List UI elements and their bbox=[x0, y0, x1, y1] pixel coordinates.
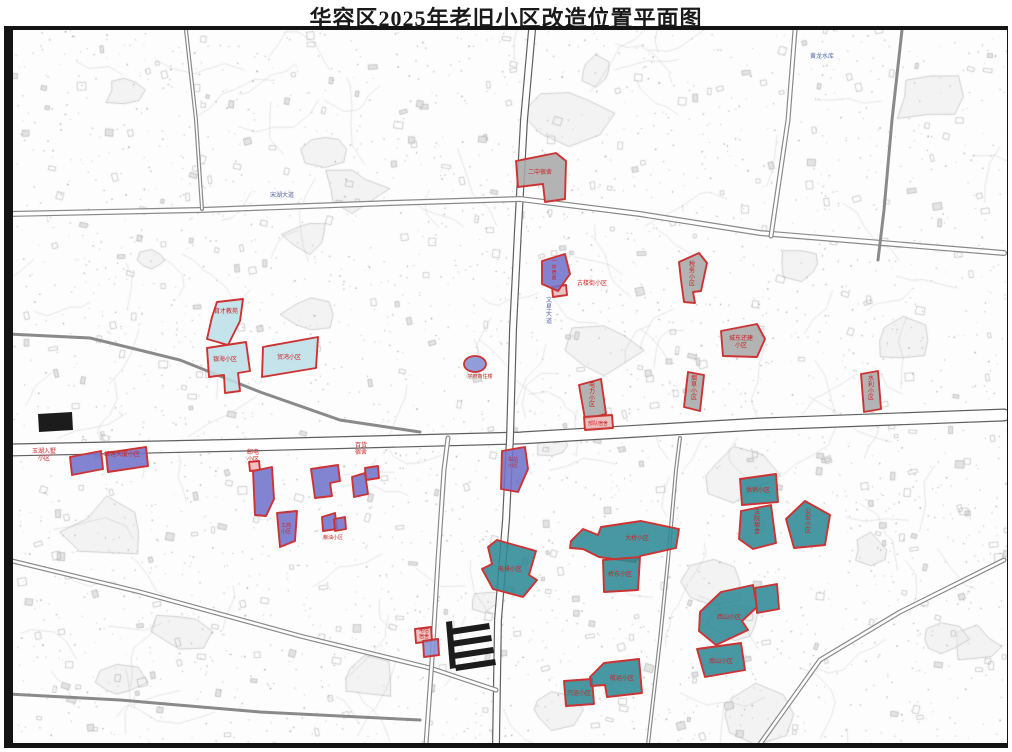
parcel-label-teal-5: 桥东小区 bbox=[608, 570, 632, 578]
road-casing-2 bbox=[13, 199, 1004, 253]
parcel-label-gray-5: 水利小区 bbox=[868, 374, 874, 402]
parcel-label-teal-6: 电排小区 bbox=[498, 565, 522, 573]
map-vector-layer: 二中宿舍税务小区城东还建小区烟草小区水利小区电力小区部队宿舍育才教苑银海小区贸鸿… bbox=[13, 30, 1007, 743]
parcel-label-teal-11: 航运小区 bbox=[610, 674, 634, 682]
parcel-label-gray-1: 二中宿舍 bbox=[528, 168, 552, 176]
parcel-label-gray-2: 税务小区 bbox=[689, 260, 695, 288]
building-block-5 bbox=[38, 412, 73, 432]
parcel-purple-8 bbox=[365, 466, 379, 480]
map-label-6: 粮油小区 bbox=[323, 534, 343, 541]
road-name-label-1: 文星大道 bbox=[546, 296, 552, 325]
parcel-purple-11 bbox=[501, 447, 528, 492]
parcel-label-cyan-3: 贸鸿小区 bbox=[277, 353, 301, 361]
parcel-label-teal-4: 大桥小区 bbox=[625, 534, 649, 542]
parcel-purple-10 bbox=[334, 517, 346, 531]
parcel-purple-6 bbox=[311, 465, 340, 498]
map-label-3: 百货宿舍 bbox=[355, 441, 367, 456]
road-casing-11 bbox=[878, 30, 902, 260]
parcel-label-teal-3: 公安小区 bbox=[805, 508, 811, 535]
parcel-label-gray-4: 烟草小区 bbox=[691, 374, 697, 402]
road-name-label-2: 黄龙水库 bbox=[810, 52, 834, 60]
map-page: 华容区2025年老旧小区改造位置平面图 二中宿舍税务小区城东还建小区烟草小区水利… bbox=[0, 0, 1012, 752]
parcel-blue-oval bbox=[464, 356, 486, 372]
map-label-5: 电信宿舍 bbox=[419, 627, 429, 640]
parcel-label-teal-1: 供销小区 bbox=[746, 486, 770, 494]
parcel-label-teal-10: 汽运小区 bbox=[567, 689, 591, 697]
map-frame: 二中宿舍税务小区城东还建小区烟草小区水利小区电力小区部队宿舍育才教苑银海小区贸鸿… bbox=[4, 26, 1008, 748]
parcel-label-pink-1: 部队宿舍 bbox=[588, 420, 608, 427]
parcel-label-purple-3: 一中宿舍 bbox=[551, 259, 556, 282]
building-block-1 bbox=[451, 635, 492, 647]
road-surface-2 bbox=[13, 199, 1004, 253]
parcel-label-teal-7: 西山小区 bbox=[717, 613, 741, 621]
parcel-label-gray-6: 电力小区 bbox=[589, 381, 595, 409]
map-label-0: 玉湖入墅小区 bbox=[32, 447, 56, 462]
parcel-label-purple-5: 工商小区 bbox=[281, 522, 291, 535]
map-label-1: 红莲大厦小区 bbox=[104, 450, 140, 458]
parcel-purple-12 bbox=[423, 639, 439, 657]
parcel-label-cyan-2: 银海小区 bbox=[213, 355, 237, 363]
parcel-label-blue-oval: 学府商住楼 bbox=[467, 373, 492, 380]
map-label-2: 邮电小区 bbox=[247, 448, 259, 463]
building-block-2 bbox=[453, 647, 494, 659]
road-casing-10 bbox=[13, 694, 420, 720]
building-block-3 bbox=[455, 659, 496, 671]
building-block-0 bbox=[449, 623, 490, 635]
road-name-label-0: 宋湖大道 bbox=[270, 191, 294, 199]
road-surface-6 bbox=[760, 560, 1004, 743]
road-surface-3 bbox=[771, 30, 795, 236]
parcel-cyan-1 bbox=[207, 299, 243, 345]
road-casing-6 bbox=[760, 560, 1004, 743]
parcel-purple-4 bbox=[253, 467, 274, 516]
parcel-label-teal-9: 南山小区 bbox=[709, 657, 733, 665]
parcel-label-purple-11: 车站小区 bbox=[508, 456, 518, 469]
parcel-label-teal-2: 法院宿舍 bbox=[754, 508, 760, 536]
map-label-4: 古楼街小区 bbox=[577, 279, 607, 287]
parcel-teal-8 bbox=[755, 584, 779, 613]
parcel-label-cyan-1: 育才教苑 bbox=[214, 307, 238, 315]
